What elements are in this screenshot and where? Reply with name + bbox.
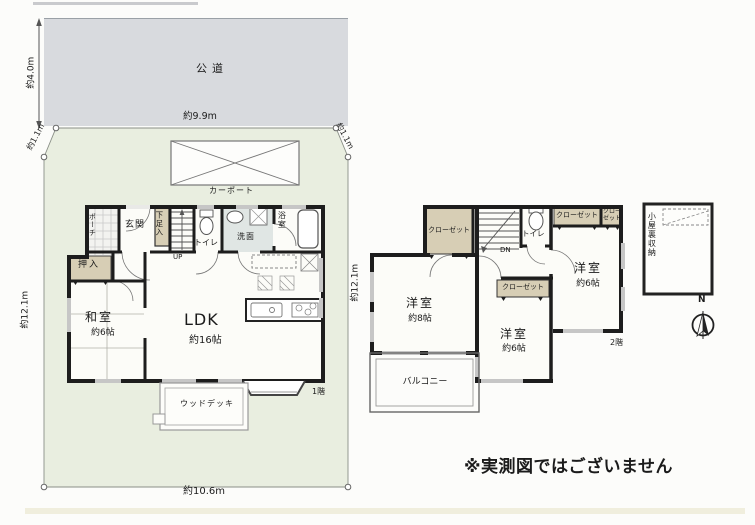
road-label: 公道 — [196, 63, 228, 75]
closet-label-middle: クローゼット — [498, 284, 548, 291]
compass-icon — [693, 311, 714, 339]
room-label-entrance: 玄関 — [125, 221, 145, 230]
room-label-porch: ポーチ — [88, 213, 95, 237]
room-label-toilet-1f: トイレ — [194, 239, 218, 247]
room-label-bedroom-right: 洋室 — [558, 262, 618, 275]
room-label-japanese-room: 和室 — [85, 311, 113, 324]
floor2-tag: 2階 — [610, 339, 623, 347]
dim-site-depth-left: 約12.1m — [21, 282, 30, 338]
room-size-japanese-room: 約6帖 — [91, 329, 115, 338]
closet-label-top-right: クローゼット — [554, 212, 600, 219]
dim-site-depth-right: 約12.1m — [351, 255, 360, 311]
dim-road-width: 約9.9m — [183, 112, 217, 122]
room-label-bathroom: 浴室 — [277, 211, 285, 229]
attic-storage-label: 小屋裏収納 — [647, 212, 655, 257]
room-label-washroom: 洗面 — [237, 233, 255, 241]
room-label-oshiire: 押入 — [78, 261, 100, 270]
floor1-tag: 1階 — [312, 388, 325, 396]
room-size-bedroom-mid: 約6帖 — [484, 345, 544, 354]
balcony-label: バルコニー — [390, 378, 460, 387]
room-size-bedroom-left: 約8帖 — [390, 315, 450, 324]
room-label-bedroom-left: 洋室 — [390, 297, 450, 310]
room-label-bedroom-mid: 洋室 — [484, 328, 544, 341]
dim-road-depth: 約4.0m — [27, 45, 36, 101]
room-label-ldk: LDK — [184, 312, 219, 329]
dim-site-width-bottom: 約10.6m — [183, 487, 225, 498]
room-label-toilet-2f: トイレ — [522, 230, 545, 238]
room-label-shoe-box: 下足入 — [155, 211, 163, 237]
closet-label-vertical: クロー ゼット — [602, 208, 622, 222]
closet-label-top-left: クローゼット — [426, 227, 472, 234]
room-size-ldk: 約16帖 — [189, 336, 222, 347]
carport-label: カーポート — [209, 187, 254, 195]
stairs-down-label: DN — [500, 247, 511, 254]
floorplan-page: 公道 約4.0m 約9.9m 約1.1m 約1.1m 約12.1m 約12.1m… — [0, 0, 755, 525]
room-size-bedroom-right: 約6帖 — [558, 280, 618, 289]
carport — [171, 141, 299, 185]
closet-label-vertical-line2: ゼット — [602, 215, 622, 222]
compass-north-label: N — [698, 296, 706, 305]
wood-deck-label: ウッドデッキ — [180, 400, 234, 408]
stairs-up-label: UP — [173, 254, 182, 261]
floorplan-drawing — [0, 0, 755, 525]
disclaimer-text: ※実測図ではございません — [464, 459, 673, 477]
